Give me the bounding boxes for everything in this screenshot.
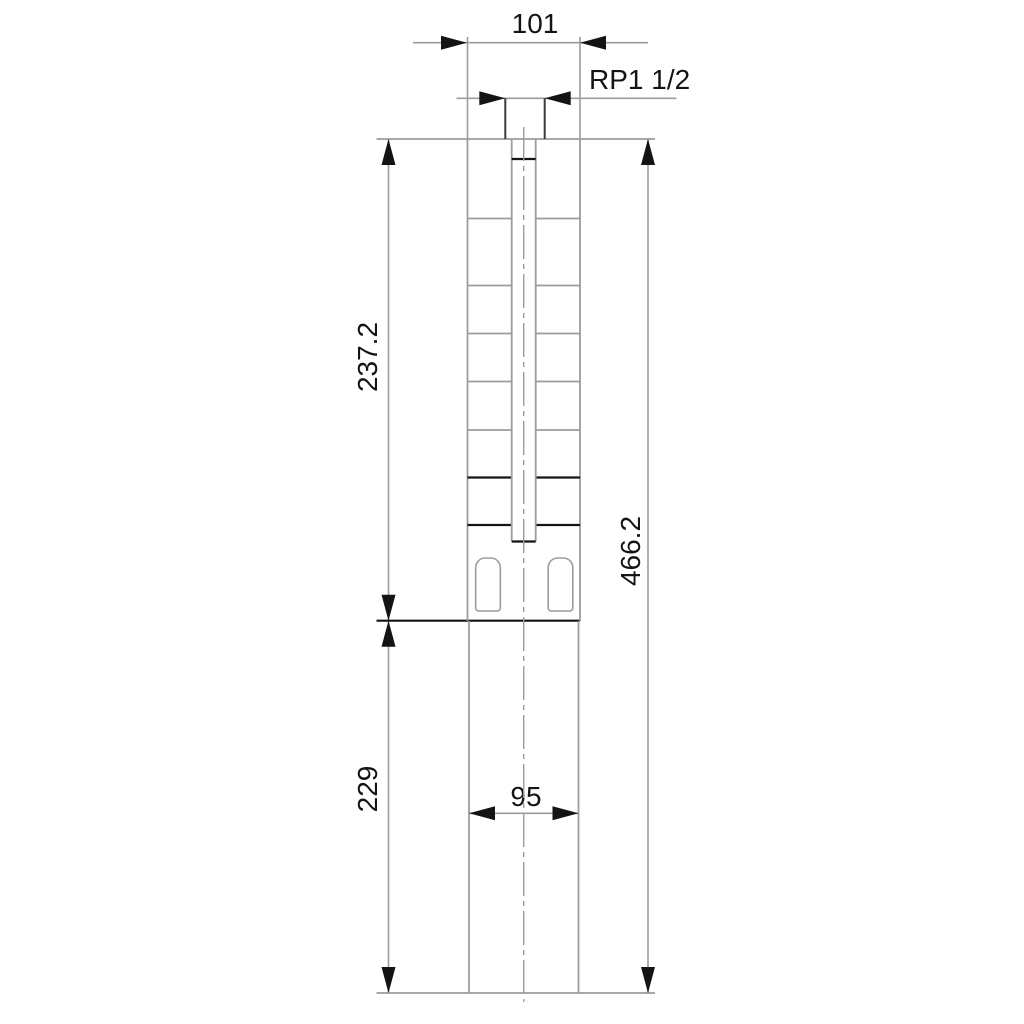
suction-slot-right [548,558,573,611]
arrowhead-up-icon [382,139,396,165]
arrowhead-right-icon [441,36,467,50]
arrowhead-down-icon [641,967,655,993]
arrowhead-up-icon [382,621,396,647]
arrowhead-down-icon [382,967,396,993]
dimension-thread: RP1 1/2 [457,64,691,105]
dimension-label-thread: RP1 1/2 [589,64,690,95]
suction-slot-left [476,558,501,611]
arrowhead-down-icon [382,595,396,621]
dimension-label-motor-width: 95 [510,781,541,812]
drawing-canvas: 101 RP1 1/2 237.2 229 466.2 [0,0,1024,1024]
dimension-label-pump-section: 237.2 [352,322,383,392]
arrowhead-right-icon [553,806,579,820]
arrowhead-left-icon [469,806,495,820]
outlet-connection-stub [505,98,544,139]
pump-dimension-drawing: 101 RP1 1/2 237.2 229 466.2 [0,0,1024,1024]
dimension-label-motor-section: 229 [352,766,383,813]
dimension-label-outlet-width: 101 [512,8,559,39]
arrowhead-left-icon [580,36,606,50]
dimension-left-column: 237.2 229 [352,139,396,993]
dimension-total-length: 466.2 [615,139,655,993]
dimension-label-total-length: 466.2 [615,516,646,586]
arrowhead-left-icon [545,91,571,105]
arrowhead-up-icon [641,139,655,165]
arrowhead-right-icon [479,91,505,105]
